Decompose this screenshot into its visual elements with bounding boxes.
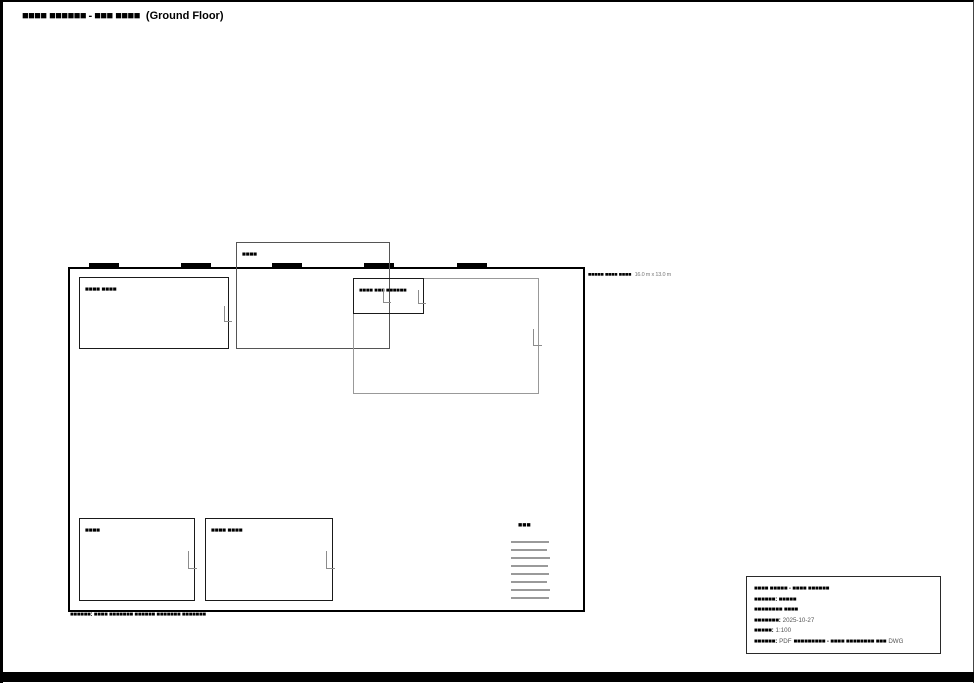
room-bottom-left-label: ■■■■ xyxy=(80,524,100,534)
stair-step-line xyxy=(511,541,549,543)
door-symbol xyxy=(533,329,542,346)
window-marker xyxy=(457,263,487,268)
export-label: ■■■■■■: xyxy=(754,638,777,645)
date-value: 2025-10-27 xyxy=(783,617,815,624)
dimension-note-redacted: ■■■■■ ■■■■ ■■■■ xyxy=(588,272,631,278)
title-block: ■■■■ ■■■■■ - ■■■■ ■■■■■■ ■■■■■■: ■■■■■ ■… xyxy=(746,576,941,654)
stair-step-line xyxy=(511,589,550,591)
stair-step-line xyxy=(511,557,550,559)
title-block-project: ■■■■ ■■■■■ - ■■■■ ■■■■■■ xyxy=(754,584,940,595)
date-label: ■■■■■■■: xyxy=(754,617,781,624)
room-bottom-mid-label: ■■■■ ■■■■ xyxy=(206,524,242,534)
sheet-title: ■■■■ ■■■■■■ - ■■■ ■■■■ (Ground Floor) xyxy=(22,10,224,22)
door-symbol xyxy=(418,290,426,304)
stair-step-line xyxy=(511,549,547,551)
door-symbol xyxy=(383,289,391,303)
export-redacted: ■■■■■■■■■ - ■■■■ ■■■■■■■■ ■■■ xyxy=(793,638,886,645)
room-bottom-mid: ■■■■ ■■■■ xyxy=(205,518,333,601)
export-format-dwg: DWG xyxy=(888,638,903,645)
stair-step-line xyxy=(511,597,549,599)
stairs-label: ■■■ xyxy=(518,522,531,529)
door-symbol xyxy=(224,306,232,322)
room-bottom-left: ■■■■ xyxy=(79,518,195,601)
title-block-scale: ■■■■■:1:100 xyxy=(754,626,940,637)
title-block-client: ■■■■■■: ■■■■■ xyxy=(754,595,940,606)
room-center-label: ■■■■ ■■■ ■■■■■■ xyxy=(354,285,406,294)
window-marker xyxy=(89,263,119,268)
dimension-note-value: 16.0 m x 13.0 m xyxy=(635,272,671,278)
stair-step-line xyxy=(511,581,547,583)
entry-area-label: ■■■■ xyxy=(237,248,257,258)
export-format-pdf: PDF xyxy=(779,638,791,645)
stair-step-line xyxy=(511,565,548,567)
room-top-left: ■■■■ ■■■■ xyxy=(79,277,229,349)
floor-plan-sheet: ■■■■ ■■■■■■ - ■■■ ■■■■ (Ground Floor) ■■… xyxy=(0,0,974,683)
sheet-bottom-bar xyxy=(0,672,974,682)
dimension-note: ■■■■■ ■■■■ ■■■■ 16.0 m x 13.0 m xyxy=(588,272,671,278)
title-block-date: ■■■■■■■:2025-10-27 xyxy=(754,616,940,627)
title-block-export: ■■■■■■:PDF■■■■■■■■■ - ■■■■ ■■■■■■■■ ■■■D… xyxy=(754,637,940,648)
sheet-title-redacted: ■■■■ ■■■■■■ - ■■■ ■■■■ xyxy=(22,10,140,22)
door-symbol xyxy=(188,551,197,569)
door-symbol xyxy=(326,551,335,569)
plan-footnote: ■■■■■■: ■■■■ ■■■■■■■ ■■■■■■ ■■■■■■■ ■■■■… xyxy=(70,612,206,618)
scale-value: 1:100 xyxy=(776,627,791,634)
window-marker xyxy=(181,263,211,268)
room-top-left-label: ■■■■ ■■■■ xyxy=(80,283,116,293)
stair-step-line xyxy=(511,573,549,575)
title-block-drawing: ■■■■■■■■ ■■■■ xyxy=(754,605,940,616)
scale-label: ■■■■■: xyxy=(754,627,774,634)
sheet-title-suffix: (Ground Floor) xyxy=(146,10,224,22)
